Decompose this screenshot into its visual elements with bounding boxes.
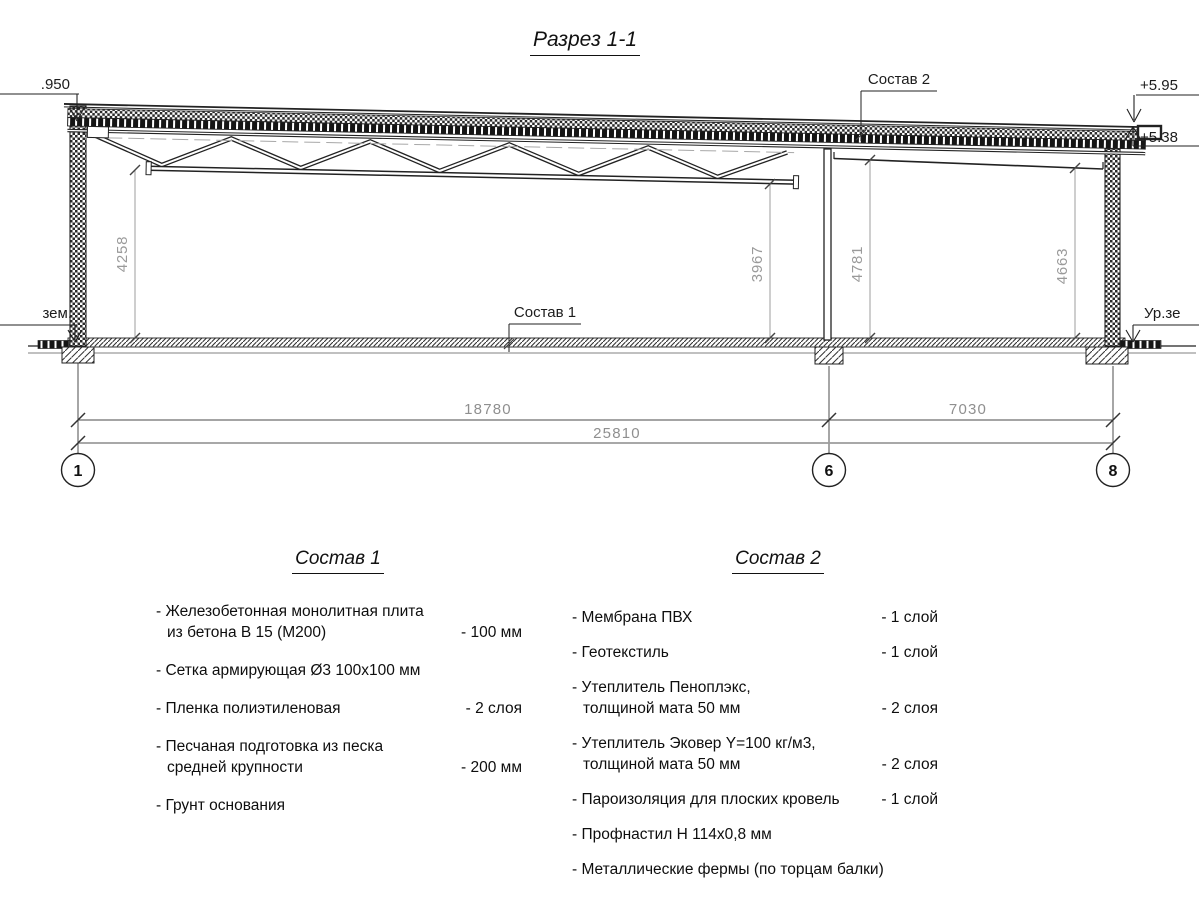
dim-4781: 4781 [849, 155, 875, 343]
item-text: - Утеплитель Эковер Y=100 кг/м3,толщиной… [572, 733, 816, 775]
truss-bearing-seat [87, 126, 108, 137]
item-line2: средней крупности [156, 757, 383, 778]
item-value: - 2 слоя [466, 698, 522, 719]
left-wall [70, 106, 86, 346]
sostav2-heading: Состав 2 [668, 548, 888, 574]
list-item: - Утеплитель Пеноплэкс,толщиной мата 50 … [572, 677, 938, 719]
ground-left-text: зем. [42, 305, 72, 322]
item-line1: - Пленка полиэтиленовая [156, 698, 341, 719]
list-item: - Профнастил Н 114х0,8 мм [572, 824, 938, 845]
item-line1: - Железобетонная монолитная плита [156, 603, 424, 620]
ground-right-text: Ур.зе [1144, 305, 1180, 322]
section-drawing: 4258 3967 4781 4663 Сост [0, 0, 1200, 500]
list-item: - Мембрана ПВХ - 1 слой [572, 607, 938, 628]
list-item: - Металлические фермы (по торцам балки) [572, 859, 938, 880]
item-line2: толщиной мата 50 мм [572, 698, 751, 719]
dim-3967-text: 3967 [749, 246, 766, 283]
sostav1-heading-text: Состав 1 [292, 548, 384, 574]
item-text: - Железобетонная монолитная плитаиз бето… [156, 601, 424, 643]
item-line1: - Утеплитель Эковер Y=100 кг/м3, [572, 735, 816, 752]
item-line1: - Пароизоляция для плоских кровель [572, 789, 840, 810]
list-item: - Пароизоляция для плоских кровель - 1 с… [572, 789, 938, 810]
item-line1: - Сетка армирующая Ø3 100х100 мм [156, 660, 420, 681]
item-line1: - Мембрана ПВХ [572, 607, 692, 628]
item-line1: - Песчаная подготовка из песка [156, 738, 383, 755]
elev-right-top-text: +5.95 [1140, 77, 1178, 94]
right-wall [1105, 149, 1120, 346]
item-line1: - Профнастил Н 114х0,8 мм [572, 824, 772, 845]
floor-label-text: Состав 1 [514, 304, 576, 321]
dim-3967: 3967 [749, 179, 775, 343]
dim-18780-text: 18780 [464, 401, 512, 418]
roof-and-truss [63, 104, 1146, 196]
list-item: - Геотекстиль - 1 слой [572, 642, 938, 663]
item-line2: из бетона В 15 (М200) [156, 622, 424, 643]
axis-bubble-8: 8 [1097, 454, 1130, 487]
item-value: - 1 слой [881, 642, 938, 663]
axis-8-label: 8 [1109, 463, 1118, 480]
item-line1: - Грунт основания [156, 795, 285, 816]
item-value: - 100 мм [461, 622, 522, 643]
sostav1-list: - Железобетонная монолитная плитаиз бето… [156, 601, 522, 833]
list-item: - Грунт основания [156, 795, 522, 816]
item-value: - 200 мм [461, 757, 522, 778]
drawing-sheet: Разрез 1-1 [0, 0, 1200, 900]
dim-4663-text: 4663 [1054, 248, 1071, 285]
bottom-dimensions: 18780 7030 25810 [71, 363, 1120, 454]
vertical-dimensions: 4258 3967 4781 4663 [114, 155, 1080, 343]
axis-bubble-1: 1 [62, 454, 95, 487]
item-value: - 1 слой [881, 607, 938, 628]
dim-7030-text: 7030 [949, 401, 987, 418]
axis-6-label: 6 [825, 463, 834, 480]
list-item: - Пленка полиэтиленовая - 2 слоя [156, 698, 522, 719]
roof-label-text: Состав 2 [868, 71, 930, 88]
item-value: - 2 слоя [882, 754, 938, 775]
dim-4781-text: 4781 [849, 246, 866, 283]
ceiling-beam [834, 152, 1103, 169]
sostav2-heading-text: Состав 2 [732, 548, 824, 574]
sostav1-heading: Состав 1 [228, 548, 448, 574]
elev-left-text: .950 [41, 76, 70, 93]
item-value: - 1 слой [881, 789, 938, 810]
middle-column [824, 149, 831, 340]
axis-bubble-6: 6 [813, 454, 846, 487]
dim-25810-text: 25810 [593, 425, 641, 442]
item-line1: - Металлические фермы (по торцам балки) [572, 859, 884, 880]
list-item: - Железобетонная монолитная плитаиз бето… [156, 601, 522, 643]
elevation-mark-right-top: +5.95 [1127, 77, 1199, 122]
ground-mark-right: Ур.зе [1126, 305, 1199, 342]
sostav2-list: - Мембрана ПВХ - 1 слой - Геотекстиль - … [572, 607, 938, 894]
list-item: - Песчаная подготовка из пескасредней кр… [156, 736, 522, 778]
item-line1: - Геотекстиль [572, 642, 669, 663]
list-item: - Сетка армирующая Ø3 100х100 мм [156, 660, 522, 681]
axis-1-label: 1 [74, 463, 83, 480]
item-line1: - Утеплитель Пеноплэкс, [572, 679, 751, 696]
dim-4258-text: 4258 [114, 236, 131, 273]
item-text: - Песчаная подготовка из пескасредней кр… [156, 736, 383, 778]
item-value: - 2 слоя [882, 698, 938, 719]
foundations [62, 347, 1128, 364]
dim-4258: 4258 [114, 165, 140, 343]
list-item: - Утеплитель Эковер Y=100 кг/м3,толщиной… [572, 733, 938, 775]
dim-4663: 4663 [1054, 163, 1080, 343]
floor-slab [68, 338, 1125, 347]
item-text: - Утеплитель Пеноплэкс,толщиной мата 50 … [572, 677, 751, 719]
truss-bottom-chord [146, 162, 799, 189]
item-line2: толщиной мата 50 мм [572, 754, 816, 775]
axis-bubbles: 1 6 8 [62, 454, 1130, 487]
elev-right-mid-text: +5.38 [1140, 129, 1178, 146]
